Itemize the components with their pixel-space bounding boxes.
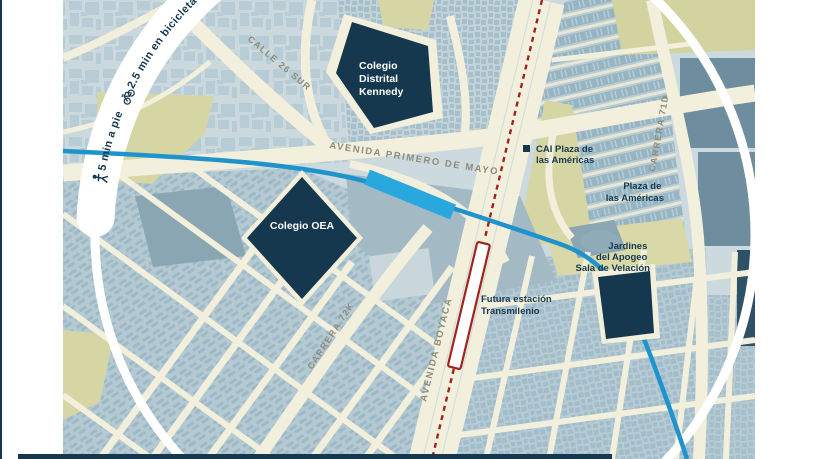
colegio-distrital-kennedy-label: Colegio Distrital Kennedy [359,60,404,98]
map-page: CALLE 26 SUR AVENIDA PRIMERO DE MAYO CAR… [0,0,816,459]
page-left-rule [0,0,2,459]
page-bottom-bar [18,454,612,459]
jardines-del-apogeo-building [598,271,654,339]
cai-marker [523,145,530,152]
cai-plaza-label: CAI Plaza de las Américas [536,144,596,166]
colegio-oea-label: Colegio OEA [270,220,335,232]
map-canvas: CALLE 26 SUR AVENIDA PRIMERO DE MAYO CAR… [0,0,816,459]
